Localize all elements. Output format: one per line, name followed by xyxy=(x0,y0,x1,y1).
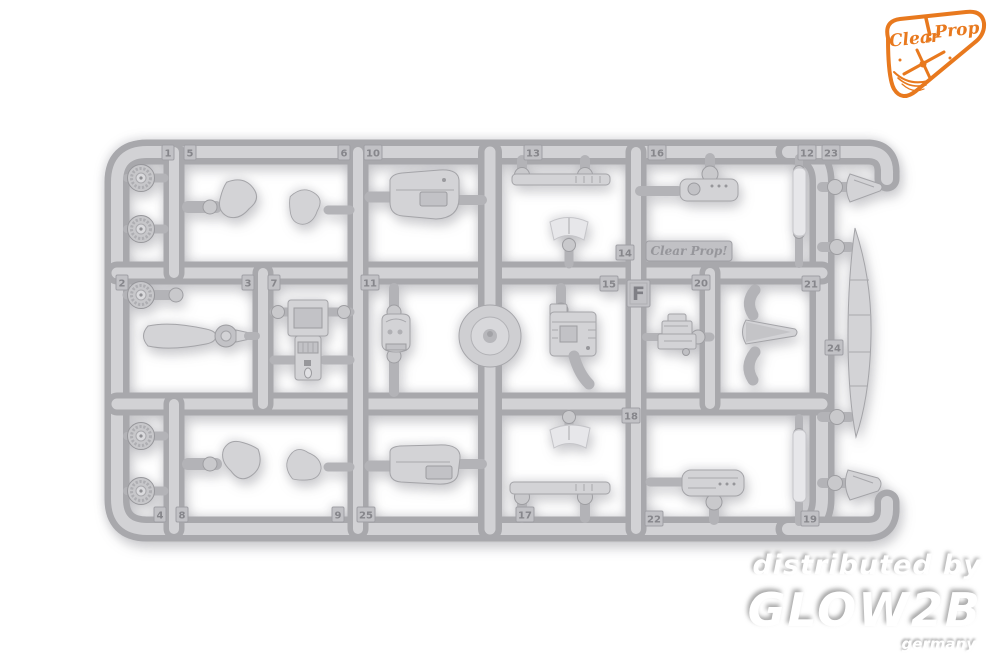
row1-parts xyxy=(127,158,882,264)
sprue-letter-tag: F xyxy=(627,280,650,307)
part-number-tag: 22 xyxy=(645,511,663,526)
engine-block-part xyxy=(550,304,596,356)
svg-text:15: 15 xyxy=(602,280,616,291)
svg-text:7: 7 xyxy=(271,279,278,290)
svg-text:19: 19 xyxy=(803,515,817,526)
nose-cap-part xyxy=(845,470,881,500)
part-number-tag: 20 xyxy=(692,275,710,290)
watermark-germany: germany xyxy=(748,635,982,653)
part-number-tag: 6 xyxy=(338,145,350,160)
svg-text:16: 16 xyxy=(650,149,664,160)
svg-text:24: 24 xyxy=(827,344,841,355)
watermark-glow2b: GLOW2B xyxy=(748,583,982,637)
carburetor-part xyxy=(658,314,696,356)
svg-text:17: 17 xyxy=(518,511,532,522)
svg-text:25: 25 xyxy=(359,511,373,522)
part-number-tag: 18 xyxy=(622,408,640,423)
part-number-tag: 9 xyxy=(332,507,344,522)
strut-part xyxy=(510,482,610,494)
embossed-brand-text: Clear Prop! xyxy=(650,244,727,258)
instrument-panel-part xyxy=(382,314,410,352)
bulkhead-part xyxy=(288,300,328,380)
svg-text:18: 18 xyxy=(624,412,638,423)
part-number-tag: 13 xyxy=(524,145,542,160)
svg-text:12: 12 xyxy=(800,149,814,160)
svg-text:21: 21 xyxy=(804,280,818,291)
svg-text:9: 9 xyxy=(335,511,342,522)
embossed-brand-plate: Clear Prop! xyxy=(646,241,732,261)
part-number-tag: 24 xyxy=(825,340,843,355)
svg-text:22: 22 xyxy=(647,515,661,526)
part-number-tag: 1 xyxy=(162,145,174,160)
central-mold-disc xyxy=(459,305,521,367)
propeller-blade-part xyxy=(144,324,217,348)
svg-text:8: 8 xyxy=(179,511,186,522)
product-photo: F Clear Prop! 15610131612232371115142021… xyxy=(0,0,1000,667)
svg-text:23: 23 xyxy=(824,149,838,160)
svg-text:14: 14 xyxy=(618,249,632,260)
svg-text:6: 6 xyxy=(341,149,348,160)
fuselage-spine-part xyxy=(848,228,871,437)
svg-text:13: 13 xyxy=(526,149,540,160)
part-number-tag: 23 xyxy=(822,145,840,160)
svg-text:20: 20 xyxy=(694,279,708,290)
part-number-tag: 21 xyxy=(802,276,820,291)
part-number-tag: 16 xyxy=(648,145,666,160)
clear-prop-logo: Clear Prop! xyxy=(864,8,994,108)
part-number-tag: 17 xyxy=(516,507,534,522)
part-number-tag: 11 xyxy=(361,275,379,290)
svg-text:11: 11 xyxy=(363,279,377,290)
svg-text:1: 1 xyxy=(165,149,172,160)
part-number-tag: 3 xyxy=(242,275,254,290)
clear-strip-part xyxy=(793,168,806,236)
part-number-tag: 19 xyxy=(801,511,819,526)
clear-strip-part xyxy=(793,430,806,502)
watermark-distributed-by: distributed by xyxy=(748,550,982,581)
sprue-letter-text: F xyxy=(632,283,645,305)
windscreen-part xyxy=(550,425,590,448)
part-number-tag: 7 xyxy=(268,275,280,290)
sprue-frame: F Clear Prop! 15610131612232371115142021… xyxy=(98,130,910,552)
row3-parts xyxy=(127,411,881,523)
part-number-tag: 4 xyxy=(154,507,166,522)
svg-text:10: 10 xyxy=(366,149,380,160)
part-number-tag: 10 xyxy=(364,145,382,160)
distributor-watermark: distributed by GLOW2B germany xyxy=(748,550,982,653)
svg-text:2: 2 xyxy=(119,279,126,290)
svg-text:5: 5 xyxy=(187,149,194,160)
part-number-tag: 5 xyxy=(184,145,196,160)
part-number-tag: 12 xyxy=(798,145,816,160)
svg-text:3: 3 xyxy=(245,279,252,290)
part-number-tag: 25 xyxy=(357,507,375,522)
part-number-tag: 2 xyxy=(116,275,128,290)
strut-part xyxy=(512,174,610,185)
part-number-tag: 8 xyxy=(176,507,188,522)
part-number-tag: 14 xyxy=(616,245,634,260)
svg-text:4: 4 xyxy=(157,511,164,522)
part-number-tag: 15 xyxy=(600,276,618,291)
